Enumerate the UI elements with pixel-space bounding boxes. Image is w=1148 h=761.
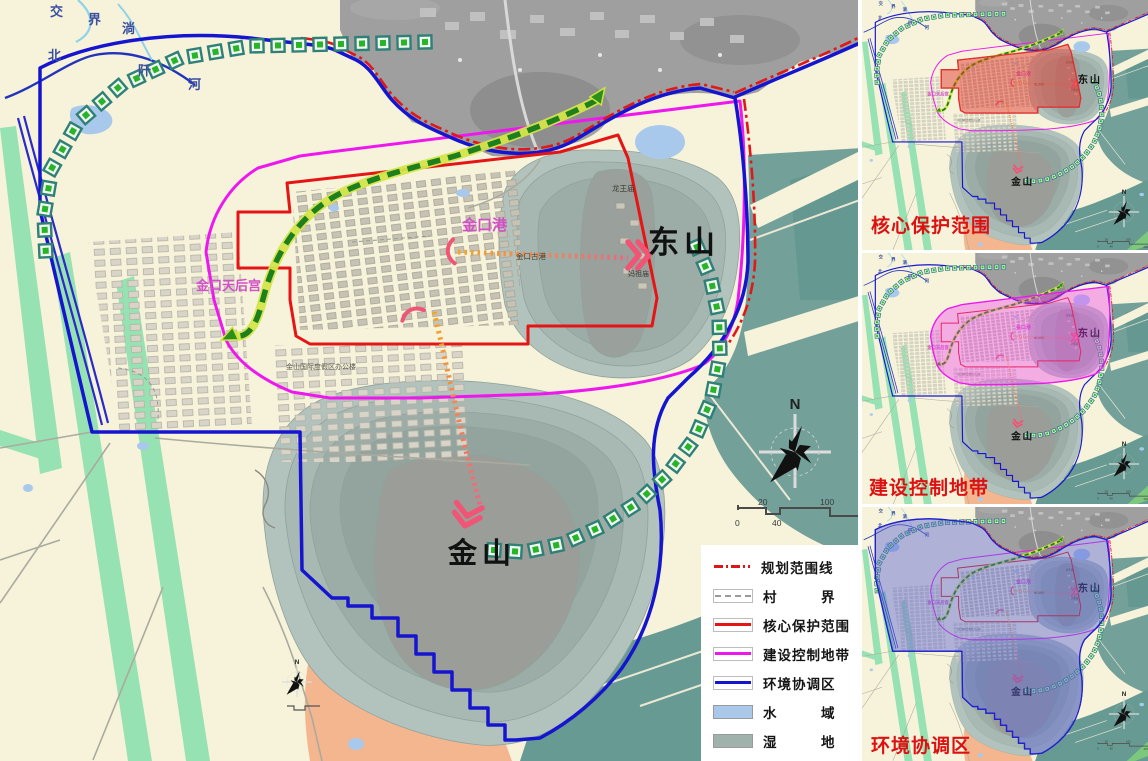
minimap-caption-environment: 环境协调区 [871, 731, 971, 758]
legend-item: 建设控制地带 [713, 639, 855, 668]
legend-symbol-wetland [713, 734, 753, 748]
legend-label: 水 域 [763, 702, 836, 722]
legend-label: 核心保护范围 [763, 615, 850, 635]
legend-label: 村 界 [763, 586, 836, 606]
legend-item: 水 域 [713, 697, 855, 726]
legend-item: 湿 地 [713, 726, 855, 755]
map-canvas: N 20 100 0 40 200m [0, 0, 1148, 761]
legend-item: 村 界 [713, 581, 855, 610]
legend-symbol-construction-control [713, 647, 753, 661]
legend-symbol-environment-coordination [713, 676, 753, 690]
minimap-caption-control: 建设控制地带 [869, 473, 989, 500]
legend-label: 湿 地 [763, 731, 836, 751]
legend-label: 建设控制地带 [763, 644, 850, 664]
legend-item: 环境协调区 [713, 668, 855, 697]
legend-panel: 规划范围线 村 界 核心保护范围 建设控制地带 环境协调区 水 域 湿 地 [701, 545, 861, 761]
legend-symbol-village-boundary [713, 589, 753, 603]
legend-item: 核心保护范围 [713, 610, 855, 639]
planning-map-page: N 20 100 0 40 200m [0, 0, 1148, 761]
minimap-construction-control [862, 252, 1148, 506]
legend-label: 规划范围线 [761, 557, 834, 577]
legend-item: 规划范围线 [713, 552, 855, 581]
legend-symbol-core-protection [713, 618, 753, 632]
legend-symbol-water [713, 705, 753, 719]
legend-label: 环境协调区 [763, 673, 836, 693]
legend-symbol-planning-line [713, 561, 751, 573]
minimap-caption-core: 核心保护范围 [871, 211, 991, 238]
minimap-environment-coordination [862, 506, 1148, 761]
